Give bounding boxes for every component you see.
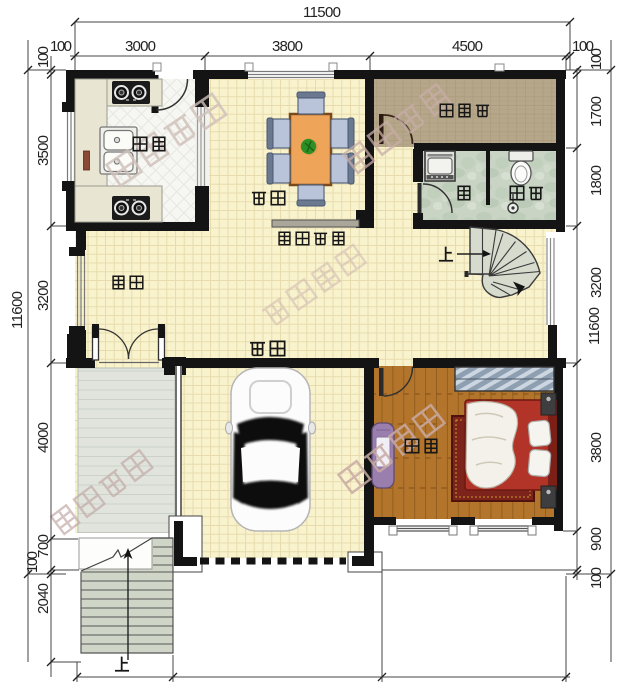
svg-text:100: 100 — [588, 48, 605, 70]
svg-text:3200: 3200 — [35, 280, 52, 311]
svg-text:900: 900 — [588, 527, 605, 551]
svg-text:4000: 4000 — [35, 422, 52, 453]
svg-text:3800: 3800 — [272, 38, 303, 55]
svg-text:3000: 3000 — [125, 38, 156, 55]
svg-text:11600: 11600 — [586, 307, 603, 345]
svg-text:2040: 2040 — [35, 583, 52, 614]
svg-text:4500: 4500 — [452, 38, 483, 55]
svg-text:1700: 1700 — [588, 96, 605, 127]
svg-text:3500: 3500 — [35, 135, 52, 166]
svg-text:3800: 3800 — [588, 432, 605, 463]
svg-text:3200: 3200 — [588, 267, 605, 298]
svg-text:1800: 1800 — [588, 165, 605, 196]
svg-text:100: 100 — [50, 38, 72, 55]
svg-text:100: 100 — [24, 551, 41, 573]
svg-text:11500: 11500 — [303, 4, 341, 21]
svg-text:11600: 11600 — [9, 291, 26, 329]
svg-text:100: 100 — [588, 567, 605, 589]
svg-text:100: 100 — [35, 46, 52, 68]
